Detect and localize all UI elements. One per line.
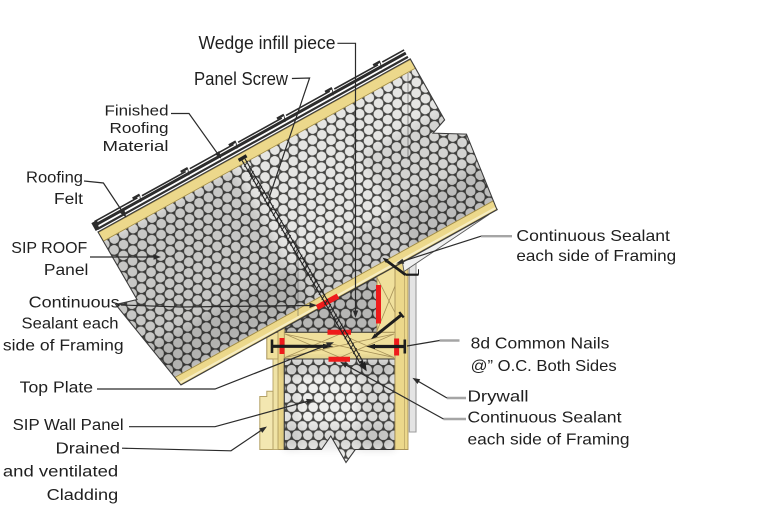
svg-text:and ventilated: and ventilated <box>3 464 118 481</box>
svg-text:Drained: Drained <box>56 440 121 457</box>
svg-text:side of Framing: side of Framing <box>3 338 124 355</box>
svg-text:each side of Framing: each side of Framing <box>516 248 676 265</box>
svg-text:Top Plate: Top Plate <box>20 380 93 397</box>
svg-text:Sealant each: Sealant each <box>22 316 119 333</box>
svg-text:Cladding: Cladding <box>47 487 119 504</box>
svg-text:Drywall: Drywall <box>468 389 529 406</box>
svg-text:Roofing: Roofing <box>110 121 169 137</box>
svg-text:Felt: Felt <box>54 191 84 208</box>
svg-text:Wedge infill piece: Wedge infill piece <box>199 33 336 53</box>
svg-text:Roofing: Roofing <box>26 169 83 186</box>
svg-text:Panel Screw: Panel Screw <box>194 69 289 89</box>
svg-text:Continuous Sealant: Continuous Sealant <box>516 228 670 245</box>
svg-text:SIP Wall Panel: SIP Wall Panel <box>13 417 124 434</box>
svg-text:SIP ROOF: SIP ROOF <box>11 240 87 257</box>
svg-text:@” O.C. Both Sides: @” O.C. Both Sides <box>471 358 617 375</box>
svg-text:8d Common Nails: 8d Common Nails <box>471 336 610 353</box>
svg-text:each side of Framing: each side of Framing <box>468 431 630 448</box>
svg-text:Panel: Panel <box>44 262 89 279</box>
svg-text:Material: Material <box>103 139 169 155</box>
svg-text:Continuous Sealant: Continuous Sealant <box>468 409 623 426</box>
svg-text:Continuous: Continuous <box>29 295 120 312</box>
svg-text:Finished: Finished <box>105 103 169 119</box>
